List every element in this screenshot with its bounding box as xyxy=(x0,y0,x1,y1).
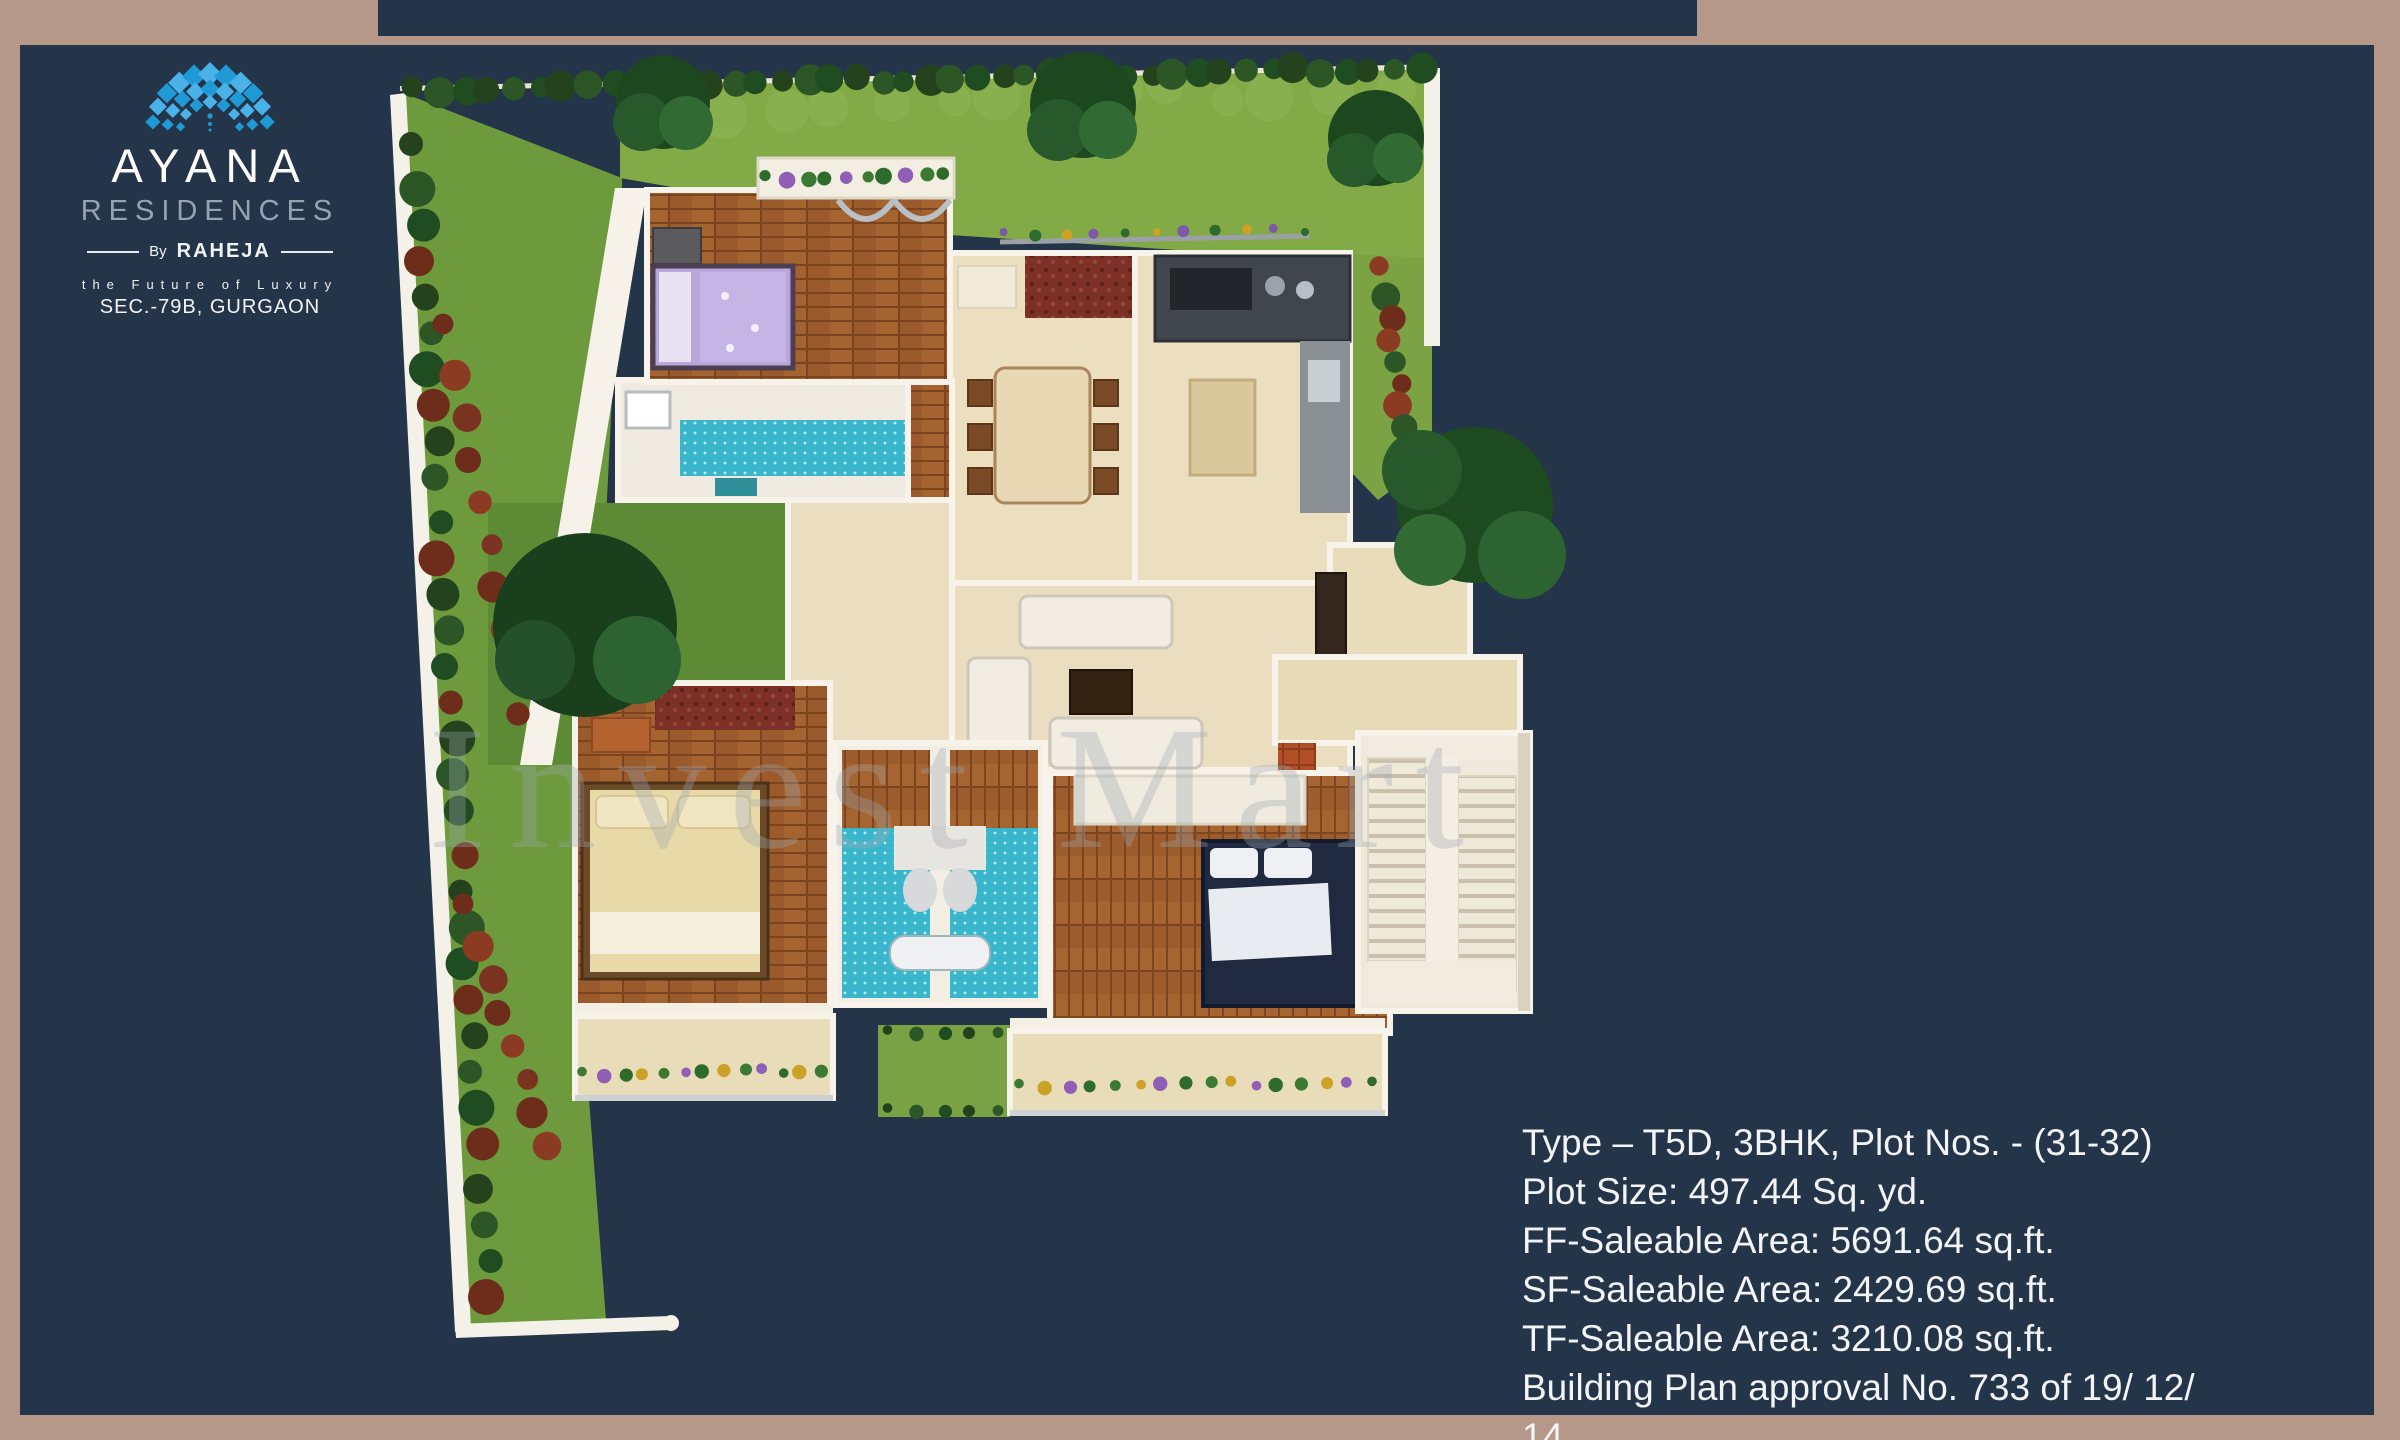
bath-tile-floor xyxy=(680,420,908,476)
byline-rule xyxy=(87,251,139,253)
washbasin xyxy=(626,392,670,428)
bedroom-2 xyxy=(575,683,830,1015)
kitchen-island xyxy=(1190,380,1255,475)
detail-line: Plot Size: 497.44 Sq. yd. xyxy=(1522,1167,2222,1216)
twin-bathrooms xyxy=(835,743,1045,1005)
brand-tagline: the Future of Luxury xyxy=(55,277,365,292)
byline-rule xyxy=(281,251,333,253)
stair-landing xyxy=(1368,961,1516,1003)
bedroom-3 xyxy=(1050,773,1394,1033)
staircase xyxy=(1358,733,1530,1011)
sink xyxy=(1308,360,1340,402)
tree-icon xyxy=(613,55,713,151)
logo-block: AYANA RESIDENCES By RAHEJA the Future of… xyxy=(55,50,365,319)
detail-line: Building Plan approval No. 733 of 19/ 12… xyxy=(1522,1363,2222,1440)
balcony-right xyxy=(1010,1031,1385,1113)
brochure-page: Invest Mart AYANA RESIDENCES By RAHEJA t… xyxy=(0,0,2400,1440)
sofa xyxy=(1050,718,1202,768)
detail-line: FF-Saleable Area: 5691.64 sq.ft. xyxy=(1522,1216,2222,1265)
detail-line: TF-Saleable Area: 3210.08 sq.ft. xyxy=(1522,1314,2222,1363)
unit-details-panel: Type – T5D, 3BHK, Plot Nos. - (31-32) Pl… xyxy=(1522,1118,2222,1440)
logo-arch-icon xyxy=(125,50,295,136)
brand-subtitle: RESIDENCES xyxy=(55,195,365,228)
twin-washbasin xyxy=(890,936,990,970)
bedroom-1 xyxy=(647,190,950,382)
stove xyxy=(1170,268,1252,310)
dresser xyxy=(592,718,650,752)
bedroom2-curtain xyxy=(655,686,795,730)
stair-flight xyxy=(1458,776,1516,991)
detail-line: SF-Saleable Area: 2429.69 sq.ft. xyxy=(1522,1265,2222,1314)
brand-location: SEC.-79B, GURGAON xyxy=(55,296,365,319)
dining-table xyxy=(995,368,1090,503)
floor-plan-illustration xyxy=(370,28,1640,1398)
wardrobe xyxy=(1075,776,1305,824)
stair-flight xyxy=(1368,758,1426,961)
bath-stool xyxy=(715,478,757,496)
bathroom-1 xyxy=(618,380,952,500)
dining-curtain xyxy=(1025,256,1135,318)
balcony-left xyxy=(575,1016,833,1098)
brand-title: AYANA xyxy=(55,138,365,193)
tree-icon xyxy=(1382,427,1566,599)
tv-cabinet xyxy=(1316,573,1346,655)
sofa xyxy=(1020,596,1172,648)
headboard-cabinet xyxy=(653,228,701,264)
dining-room xyxy=(950,253,1135,585)
right-boundary-wall xyxy=(1424,68,1440,346)
developer-name: RAHEJA xyxy=(177,240,271,263)
brand-byline: By RAHEJA xyxy=(55,240,365,263)
detail-line: Type – T5D, 3BHK, Plot Nos. - (31-32) xyxy=(1522,1118,2222,1167)
dressing-floor xyxy=(908,380,952,500)
coffee-table xyxy=(1070,670,1132,714)
